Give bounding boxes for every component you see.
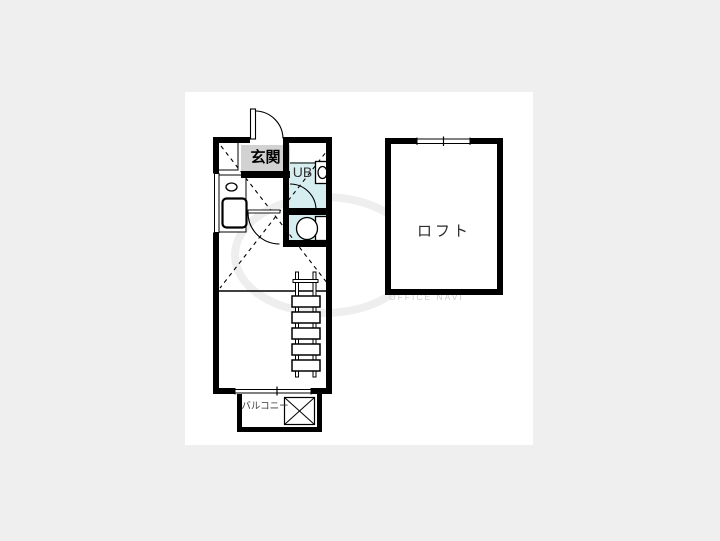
unit-bath-label: UB bbox=[287, 165, 318, 179]
floor-plan-drawing: OFFICE NAVI bbox=[185, 92, 533, 445]
loft-room bbox=[385, 137, 503, 296]
entrance-label: 玄関 bbox=[241, 150, 290, 165]
loft-label: ロフト bbox=[391, 224, 497, 239]
toilet-icon bbox=[297, 217, 329, 241]
kitchen-sink-icon bbox=[223, 199, 247, 228]
loft-ladder-icon bbox=[292, 272, 320, 377]
kitchen bbox=[219, 175, 247, 232]
kitchen-window bbox=[213, 173, 220, 233]
entrance-door-icon bbox=[251, 109, 284, 139]
balcony-label: バルコニー bbox=[239, 402, 291, 412]
balcony bbox=[237, 394, 322, 432]
floor-plan-image: OFFICE NAVI 玄関 UB ロフト バルコニー bbox=[0, 0, 720, 541]
burner-icon bbox=[226, 183, 237, 191]
balcony-window bbox=[235, 387, 311, 396]
